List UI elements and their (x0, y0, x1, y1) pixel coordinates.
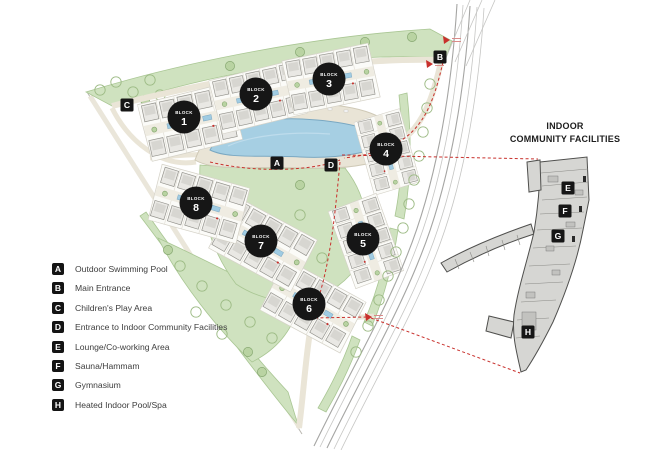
block-1-badge: BLOCK1 (168, 101, 201, 134)
site-plan-page: E F G H A B C D BLOCK1 BLOCK2 BLOCK3 BLO… (0, 0, 650, 450)
marker-b: B (434, 51, 447, 64)
legend-label-e: Lounge/Co-working Area (75, 342, 170, 352)
svg-text:C: C (124, 100, 130, 110)
svg-text:4: 4 (383, 148, 389, 160)
legend-item-e: E Lounge/Co-working Area (52, 341, 227, 353)
legend-label-g: Gymnasium (75, 380, 121, 390)
svg-text:5: 5 (360, 238, 366, 250)
legend-label-f: Sauna/Hammam (75, 361, 139, 371)
legend-item-a: A Outdoor Swimming Pool (52, 263, 227, 275)
svg-text:7: 7 (258, 240, 264, 252)
svg-text:BLOCK: BLOCK (187, 196, 205, 201)
legend-item-b: B Main Entrance (52, 282, 227, 294)
svg-text:H: H (525, 327, 531, 337)
svg-text:D: D (328, 160, 334, 170)
marker-g: G (552, 230, 565, 243)
legend: A Outdoor Swimming Pool B Main Entrance … (52, 263, 227, 418)
svg-text:3: 3 (326, 78, 332, 90)
marker-c: C (121, 99, 134, 112)
legend-key-d: D (52, 321, 64, 333)
access-ramp (441, 224, 534, 272)
svg-text:A: A (274, 158, 280, 168)
detail-title-line2: COMMUNITY FACILITIES (498, 133, 632, 146)
legend-item-d: D Entrance to Indoor Community Facilitie… (52, 321, 227, 333)
svg-text:BLOCK: BLOCK (252, 234, 270, 239)
legend-key-c: C (52, 302, 64, 314)
block-3-badge: BLOCK3 (313, 63, 346, 96)
svg-text:E: E (565, 183, 571, 193)
block-6-badge: BLOCK6 (293, 288, 326, 321)
detail-title-line1: INDOOR (498, 120, 632, 133)
svg-text:1: 1 (181, 116, 187, 128)
marker-d: D (325, 159, 338, 172)
marker-a: A (271, 157, 284, 170)
svg-text:BLOCK: BLOCK (175, 110, 193, 115)
legend-key-h: H (52, 399, 64, 411)
detail-title: INDOOR COMMUNITY FACILITIES (498, 120, 632, 146)
svg-text:BLOCK: BLOCK (320, 72, 338, 77)
legend-label-d: Entrance to Indoor Community Facilities (75, 322, 227, 332)
svg-text:2: 2 (253, 93, 259, 105)
legend-key-f: F (52, 360, 64, 372)
legend-label-h: Heated Indoor Pool/Spa (75, 400, 167, 410)
marker-f: F (559, 205, 572, 218)
legend-key-b: B (52, 282, 64, 294)
svg-text:BLOCK: BLOCK (354, 232, 372, 237)
svg-text:6: 6 (306, 303, 312, 315)
legend-key-g: G (52, 379, 64, 391)
legend-item-c: C Children's Play Area (52, 302, 227, 314)
svg-text:BLOCK: BLOCK (247, 87, 265, 92)
svg-text:8: 8 (193, 202, 199, 214)
marker-h: H (522, 326, 535, 339)
legend-item-g: G Gymnasium (52, 379, 227, 391)
legend-key-a: A (52, 263, 64, 275)
marker-e: E (562, 182, 575, 195)
svg-text:B: B (437, 52, 443, 62)
legend-item-h: H Heated Indoor Pool/Spa (52, 399, 227, 411)
block-7-badge: BLOCK7 (245, 225, 278, 258)
legend-label-a: Outdoor Swimming Pool (75, 264, 168, 274)
legend-label-c: Children's Play Area (75, 303, 152, 313)
block-5-badge: BLOCK5 (347, 223, 380, 256)
svg-text:BLOCK: BLOCK (300, 297, 318, 302)
legend-key-e: E (52, 341, 64, 353)
svg-text:F: F (562, 206, 567, 216)
block-2-badge: BLOCK2 (240, 78, 273, 111)
svg-text:BLOCK: BLOCK (377, 142, 395, 147)
block-8-badge: BLOCK8 (180, 187, 213, 220)
svg-text:G: G (555, 231, 562, 241)
legend-label-b: Main Entrance (75, 283, 130, 293)
block-4-badge: BLOCK4 (370, 133, 403, 166)
legend-item-f: F Sauna/Hammam (52, 360, 227, 372)
lower-wing (486, 316, 514, 338)
